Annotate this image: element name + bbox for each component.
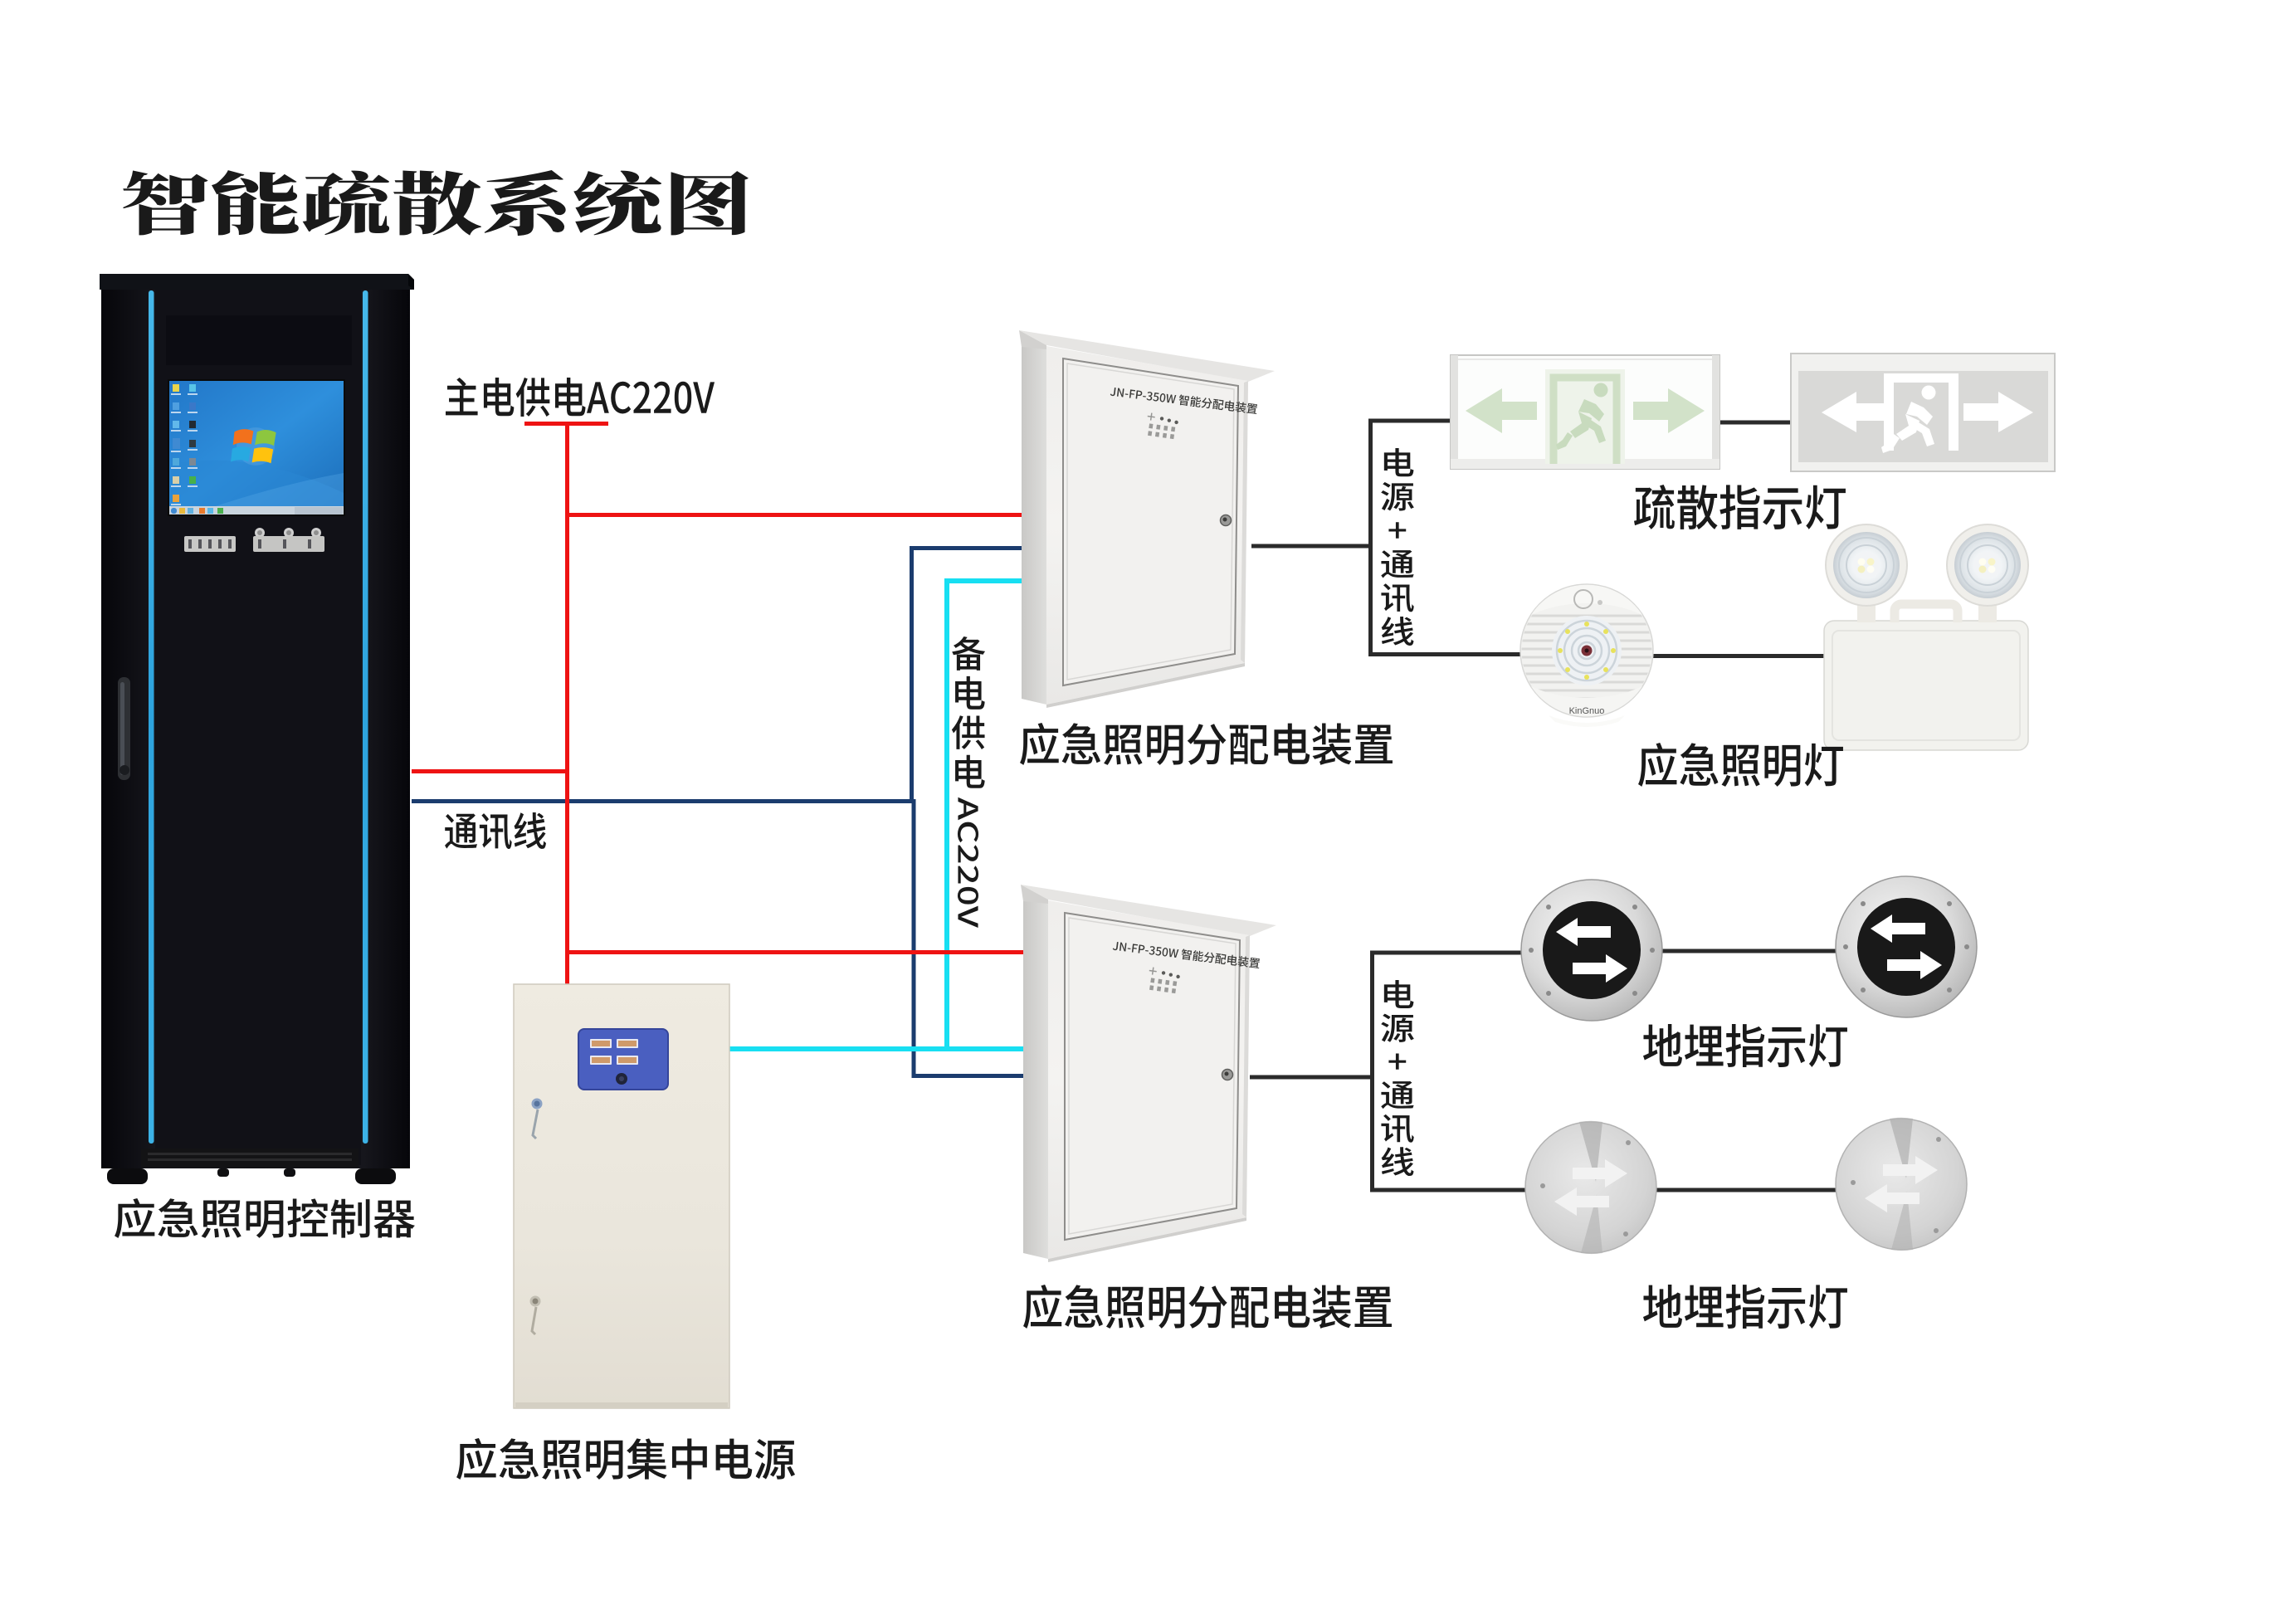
svg-text:KinGnuo: KinGnuo — [1569, 706, 1605, 716]
